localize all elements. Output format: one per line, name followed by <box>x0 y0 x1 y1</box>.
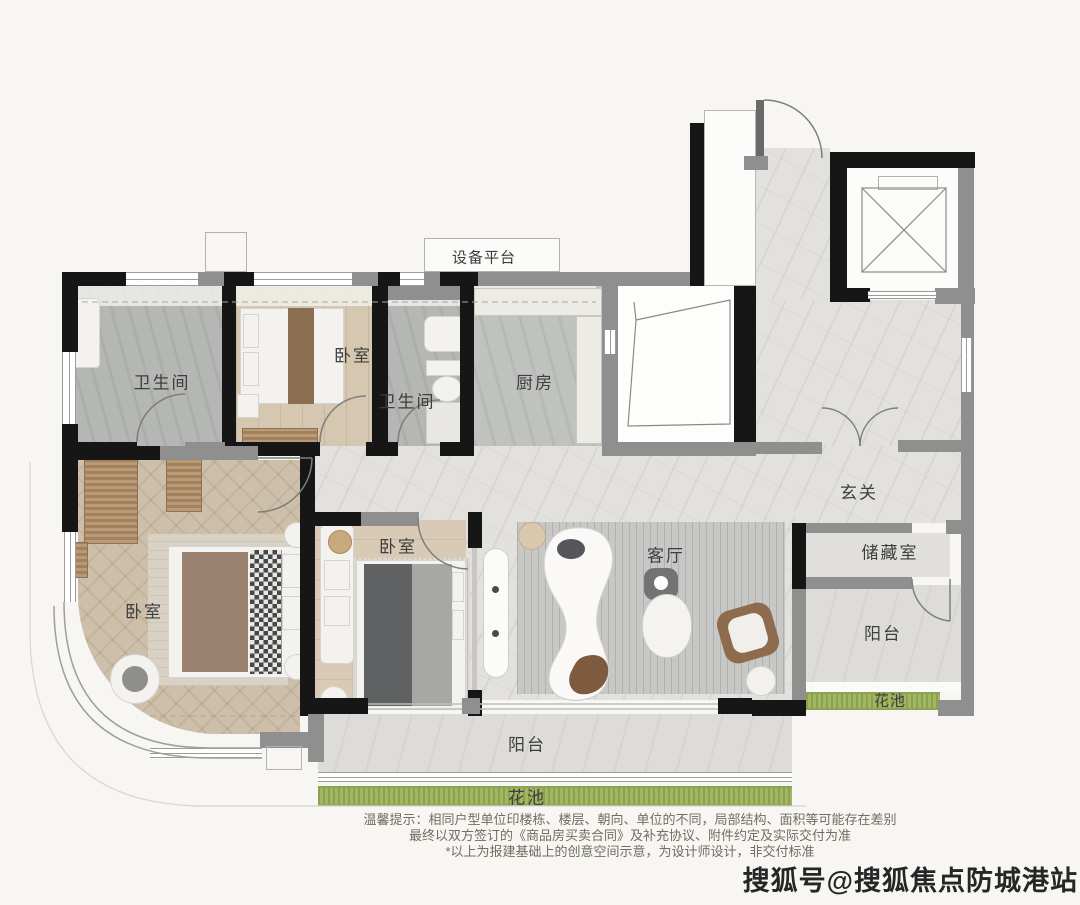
label-bedroom-top: 卧室 <box>334 342 372 367</box>
label-bathroom2: 卫生间 <box>379 388 436 413</box>
door-arc-master <box>258 458 312 512</box>
label-flowerbed-bottom: 花池 <box>508 784 546 809</box>
door-arc-corridor <box>764 100 822 158</box>
label-equipment-platform: 设备平台 <box>452 247 516 268</box>
entry-door-left <box>822 408 860 446</box>
curved-window <box>64 602 262 748</box>
sofa-cushion <box>557 539 585 559</box>
door-arc-bedroom2 <box>418 519 468 569</box>
entry-door-right <box>860 408 898 446</box>
disclaimer-line1: 温馨提示：相同户型单位印楼栋、楼层、朝向、单位的不同，局部结构、面积等可能存在差… <box>180 812 1080 828</box>
lightwell-symbol <box>628 300 730 426</box>
door-arc-bathroom1 <box>137 394 185 442</box>
label-kitchen: 厨房 <box>516 369 554 394</box>
door-arc-storage <box>912 579 950 621</box>
curved-window <box>54 606 262 758</box>
floorplan-canvas: 设备平台 卫生间 卧室 卫生间 厨房 玄关 储藏室 阳台 花池 卧室 卧室 客厅… <box>0 0 1080 905</box>
property-line <box>30 462 806 806</box>
plan-linework <box>0 0 1080 905</box>
disclaimer-line2: 最终以双方签订的《商品房买卖合同》及补充协议、附件约定及实际交付为准 <box>180 828 1080 844</box>
label-living-room: 客厅 <box>647 542 685 567</box>
label-balcony-right: 阳台 <box>864 620 902 645</box>
label-master-bedroom: 卧室 <box>125 598 163 623</box>
label-bedroom2: 卧室 <box>379 533 417 558</box>
label-entry: 玄关 <box>840 479 878 504</box>
label-bathroom1: 卫生间 <box>134 369 191 394</box>
label-balcony-bottom: 阳台 <box>508 731 546 756</box>
label-flowerbed-right: 花池 <box>874 690 906 711</box>
label-storage: 储藏室 <box>862 539 919 564</box>
watermark: 搜狐号@搜狐焦点防城港站 <box>743 859 1078 898</box>
door-arc-bedroom-top <box>320 396 366 442</box>
disclaimer-line3: *以上为报建基础上的创意空间示意，为设计师设计，非交付标准 <box>180 844 1080 860</box>
disclaimer: 温馨提示：相同户型单位印楼栋、楼层、朝向、单位的不同，局部结构、面积等可能存在差… <box>180 812 1080 860</box>
